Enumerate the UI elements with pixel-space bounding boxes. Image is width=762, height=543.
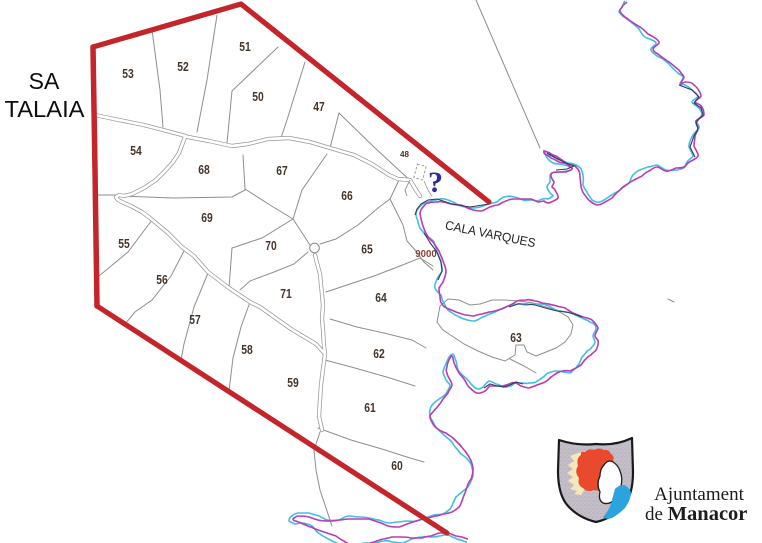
svg-text:65: 65 bbox=[361, 242, 373, 257]
svg-text:53: 53 bbox=[122, 66, 134, 81]
svg-text:58: 58 bbox=[241, 342, 253, 357]
svg-text:57: 57 bbox=[189, 312, 201, 327]
svg-text:60: 60 bbox=[391, 458, 403, 473]
svg-text:51: 51 bbox=[239, 39, 251, 54]
svg-text:54: 54 bbox=[130, 143, 142, 158]
svg-text:71: 71 bbox=[280, 286, 292, 301]
svg-text:67: 67 bbox=[276, 163, 288, 178]
svg-text:64: 64 bbox=[375, 290, 387, 305]
svg-text:?: ? bbox=[428, 166, 443, 199]
svg-text:Ajuntament: Ajuntament bbox=[654, 484, 744, 505]
svg-text:66: 66 bbox=[341, 188, 353, 203]
svg-text:52: 52 bbox=[177, 59, 189, 74]
svg-text:50: 50 bbox=[252, 89, 264, 104]
svg-text:70: 70 bbox=[265, 238, 277, 253]
svg-text:69: 69 bbox=[201, 210, 213, 225]
svg-text:62: 62 bbox=[373, 346, 385, 361]
svg-text:SA: SA bbox=[29, 68, 60, 94]
svg-text:de Manacor: de Manacor bbox=[645, 503, 747, 525]
svg-text:61: 61 bbox=[364, 400, 376, 415]
svg-text:48: 48 bbox=[400, 149, 409, 159]
svg-text:TALAIA: TALAIA bbox=[5, 96, 86, 122]
svg-text:47: 47 bbox=[313, 99, 325, 114]
svg-text:59: 59 bbox=[287, 375, 299, 390]
svg-text:68: 68 bbox=[198, 162, 210, 177]
svg-text:56: 56 bbox=[156, 272, 168, 287]
svg-text:55: 55 bbox=[118, 236, 130, 251]
svg-text:9000: 9000 bbox=[415, 249, 437, 260]
svg-text:63: 63 bbox=[510, 330, 522, 345]
